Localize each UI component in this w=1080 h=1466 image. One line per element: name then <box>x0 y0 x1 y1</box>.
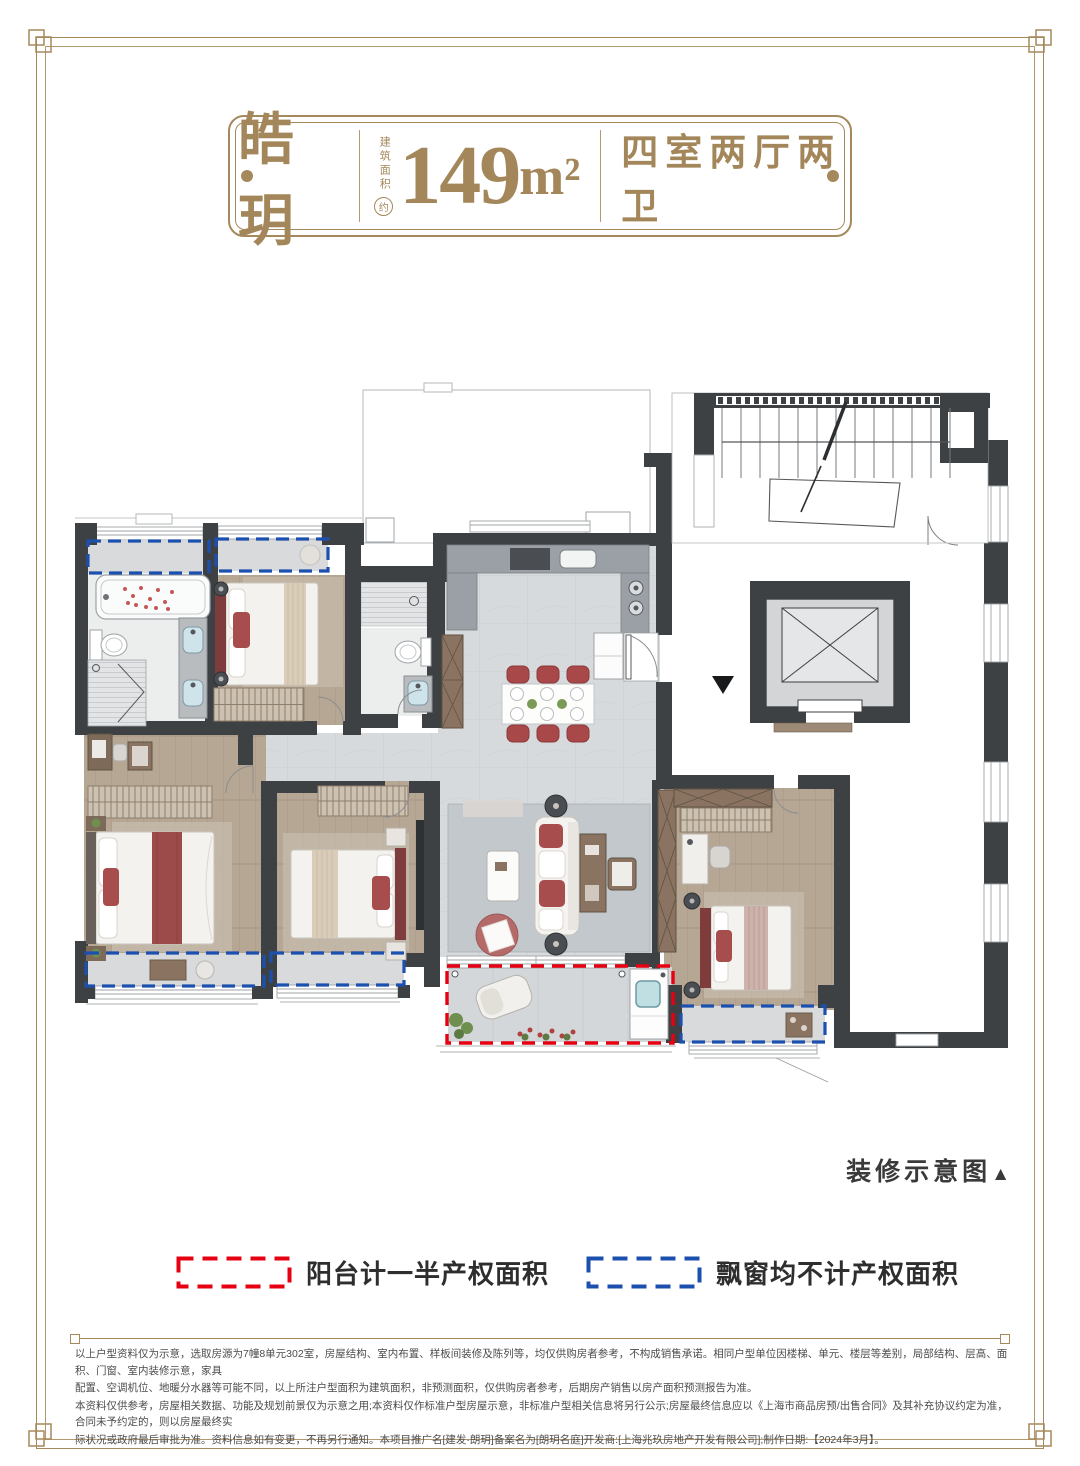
stairwell <box>672 393 990 545</box>
tv-icon <box>416 820 424 930</box>
disclaimer-divider <box>78 1338 1002 1339</box>
disclaimer-line: 配置、空调机位、地暖分水器等可能不同，以上所注户型面积为建筑面积，非预测面积，仅… <box>75 1380 1008 1397</box>
plant-icon <box>557 699 567 709</box>
disclaimer-line: 际状况或政府最后审批为准。资料信息如有变更，不再另行通知。本项目推广名[建发·朗… <box>75 1432 1008 1449</box>
chair-icon <box>113 744 127 761</box>
coffee-table-icon <box>487 851 519 901</box>
legend-balcony-label: 阳台计一半产权面积 <box>306 1254 549 1291</box>
kitchen-sink-icon <box>560 550 596 568</box>
chair-icon <box>710 846 730 868</box>
closet-icon <box>674 789 772 807</box>
legend-baywindow: 飘窗均不计产权面积 <box>586 1254 959 1291</box>
legend-baywindow-label: 飘窗均不计产权面积 <box>716 1254 959 1291</box>
toilet-icon <box>421 638 431 666</box>
dining-area <box>502 666 594 742</box>
pantry-cabinet-icon <box>442 635 463 728</box>
bay-decor-icon <box>300 545 320 565</box>
bay-decor-icon <box>150 960 186 980</box>
bay-decor-icon <box>786 1013 812 1037</box>
shower-head-icon <box>410 597 419 606</box>
entry-door <box>594 633 658 681</box>
disclaimer-line: 本资料仅供参考，房屋相关数据、功能及规划前景仅为示意之用;本资料仅作标准户型房屋… <box>75 1398 1008 1431</box>
blue-dashed-box-icon <box>586 1256 702 1289</box>
bay-decor-icon <box>196 961 214 979</box>
disclaimer-line: 以上户型资料仅为示意，选取房源为7幢8单元302室，房屋结构、室内布置、样板间装… <box>75 1346 1008 1379</box>
up-triangle-icon: ▲ <box>991 1164 1010 1185</box>
red-dashed-box-icon <box>176 1256 292 1289</box>
range-hood-icon <box>510 548 550 570</box>
decoration-note: 装修示意图▲ <box>600 1152 1010 1188</box>
divider-ornament-icon <box>70 1334 80 1344</box>
disclaimer: 以上户型资料仅为示意，选取房源为7幢8单元302室，房屋结构、室内布置、样板间装… <box>75 1346 1008 1449</box>
divider-ornament-icon <box>1000 1334 1010 1344</box>
nightstand-icon <box>386 942 406 960</box>
desk-icon <box>682 834 708 884</box>
floorplan-drawing <box>0 0 1080 1466</box>
toilet-icon <box>90 630 102 660</box>
living-room <box>448 795 650 956</box>
plant-icon <box>527 699 537 709</box>
legend-balcony: 阳台计一半产权面积 <box>176 1254 549 1291</box>
nightstand-icon <box>386 828 406 846</box>
bathtub-icon <box>96 575 210 619</box>
elevator <box>750 581 910 732</box>
